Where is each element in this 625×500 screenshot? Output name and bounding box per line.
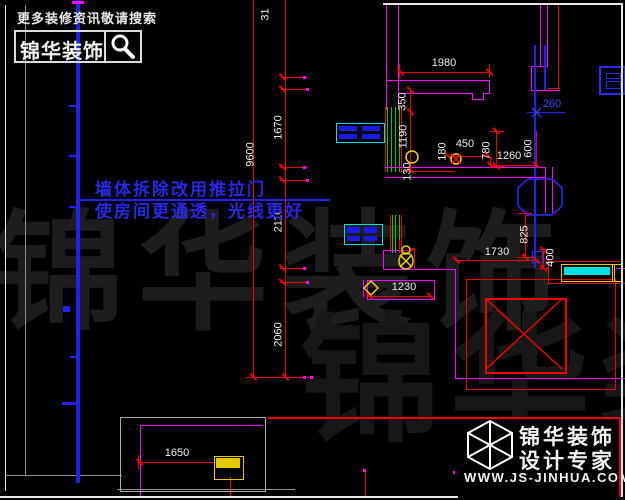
wall-red bbox=[558, 4, 559, 90]
wall bbox=[472, 99, 484, 100]
frame-bottom bbox=[0, 496, 458, 498]
annotation-line2: 使房间更通透，光线更好 bbox=[95, 197, 304, 222]
legend-glyph bbox=[606, 81, 621, 89]
dim-label-600: 600 bbox=[524, 127, 535, 171]
dim-line-1980 bbox=[400, 72, 490, 73]
bottom-tick bbox=[365, 470, 366, 497]
dim-label-130: 130 bbox=[403, 150, 414, 194]
dim-label-31: 31 bbox=[261, 0, 272, 37]
cad-floorplan-canvas: 锦华装饰 锦华装饰 bbox=[0, 0, 625, 500]
yellow-fixture-symbol bbox=[214, 456, 244, 480]
legend-glyph bbox=[606, 73, 621, 79]
wall bbox=[545, 167, 546, 213]
wall-blue bbox=[544, 45, 546, 90]
axis-blue-line bbox=[76, 0, 80, 483]
lamp-dot bbox=[411, 248, 415, 251]
dim-end-dot bbox=[303, 376, 306, 379]
wall bbox=[383, 269, 456, 270]
dim-label-1670: 1670 bbox=[274, 106, 285, 150]
window-frame bbox=[401, 215, 402, 253]
dim-end-dot bbox=[306, 88, 309, 91]
brand-name: 锦华装饰 bbox=[20, 35, 104, 64]
wall bbox=[552, 167, 553, 213]
footer-url: WWW.JS-JINHUA.COM bbox=[464, 470, 625, 485]
frame-left-inner bbox=[25, 5, 26, 475]
lamp-leader bbox=[414, 250, 415, 270]
dim-label-9600: 9600 bbox=[246, 133, 257, 177]
dim-label-1260: 1260 bbox=[487, 151, 531, 162]
axis-tick bbox=[63, 306, 70, 312]
axis-tick bbox=[69, 206, 79, 208]
window bbox=[387, 107, 388, 172]
cube-wireframe-icon bbox=[463, 419, 517, 471]
dim-end-dot bbox=[303, 166, 306, 169]
dim-end-dot bbox=[306, 281, 309, 284]
wall bbox=[386, 4, 387, 110]
frame-right bbox=[621, 3, 623, 497]
wall bbox=[489, 80, 490, 94]
footer-logo-block: 锦华装饰 设计专家 WWW.JS-JINHUA.COM bbox=[455, 419, 623, 498]
window-frame bbox=[385, 107, 386, 172]
wall bbox=[531, 66, 532, 90]
dim-label-1230: 1230 bbox=[382, 282, 426, 293]
window bbox=[391, 107, 392, 172]
magnifier-icon bbox=[106, 32, 140, 61]
window bbox=[395, 107, 396, 172]
frame-top bbox=[383, 3, 623, 5]
dim-end-dot bbox=[303, 76, 306, 79]
window bbox=[395, 215, 396, 253]
axis-tick bbox=[69, 155, 79, 157]
sill-line bbox=[548, 261, 622, 262]
frame-bottom-left bbox=[5, 475, 122, 476]
dim-label-2060: 2060 bbox=[274, 313, 285, 357]
axis-tick bbox=[69, 105, 79, 107]
wall bbox=[455, 269, 456, 378]
wall bbox=[383, 250, 384, 269]
wall-red bbox=[548, 88, 560, 89]
wall bbox=[547, 4, 548, 66]
dim-label-1650: 1650 bbox=[155, 448, 199, 459]
dim-chain-line bbox=[285, 0, 286, 378]
cabinet-symbol bbox=[344, 224, 383, 245]
window-sill-symbol bbox=[561, 264, 615, 282]
search-hint-text: 更多装修资讯敬请搜索 bbox=[17, 8, 157, 27]
column-octagon bbox=[518, 179, 562, 215]
wall bbox=[363, 280, 364, 297]
axis-tick bbox=[62, 402, 76, 405]
dim-label-180: 180 bbox=[438, 130, 449, 174]
frame-right-red bbox=[619, 418, 621, 497]
dim-label-1730: 1730 bbox=[475, 247, 519, 258]
dim-end-dot bbox=[363, 469, 366, 472]
window bbox=[392, 215, 393, 253]
window-frame bbox=[390, 215, 391, 253]
cabinet-symbol bbox=[336, 123, 385, 143]
wall bbox=[540, 4, 541, 66]
dim-end-dot bbox=[306, 179, 309, 182]
cyan-fill bbox=[564, 267, 610, 275]
wall bbox=[383, 250, 400, 251]
dim-label-825: 825 bbox=[520, 213, 531, 257]
dim-line-260 bbox=[527, 112, 565, 113]
dim-line-1730 bbox=[455, 260, 537, 261]
dim-end-dot bbox=[310, 376, 313, 379]
dim-end-dot bbox=[303, 267, 306, 270]
shaft-cross-box bbox=[485, 298, 567, 374]
brand-search-box: 锦华装饰 bbox=[14, 30, 142, 63]
dim-line-600 bbox=[536, 131, 537, 167]
axis-tick bbox=[70, 356, 79, 358]
frame-left-outer bbox=[5, 5, 6, 491]
dim-label-400: 400 bbox=[546, 236, 557, 280]
dim-label-260: 260 bbox=[530, 99, 574, 110]
axis-end-tick bbox=[72, 1, 84, 4]
yellow-fill bbox=[216, 458, 240, 468]
dim-label-1980: 1980 bbox=[422, 58, 466, 69]
